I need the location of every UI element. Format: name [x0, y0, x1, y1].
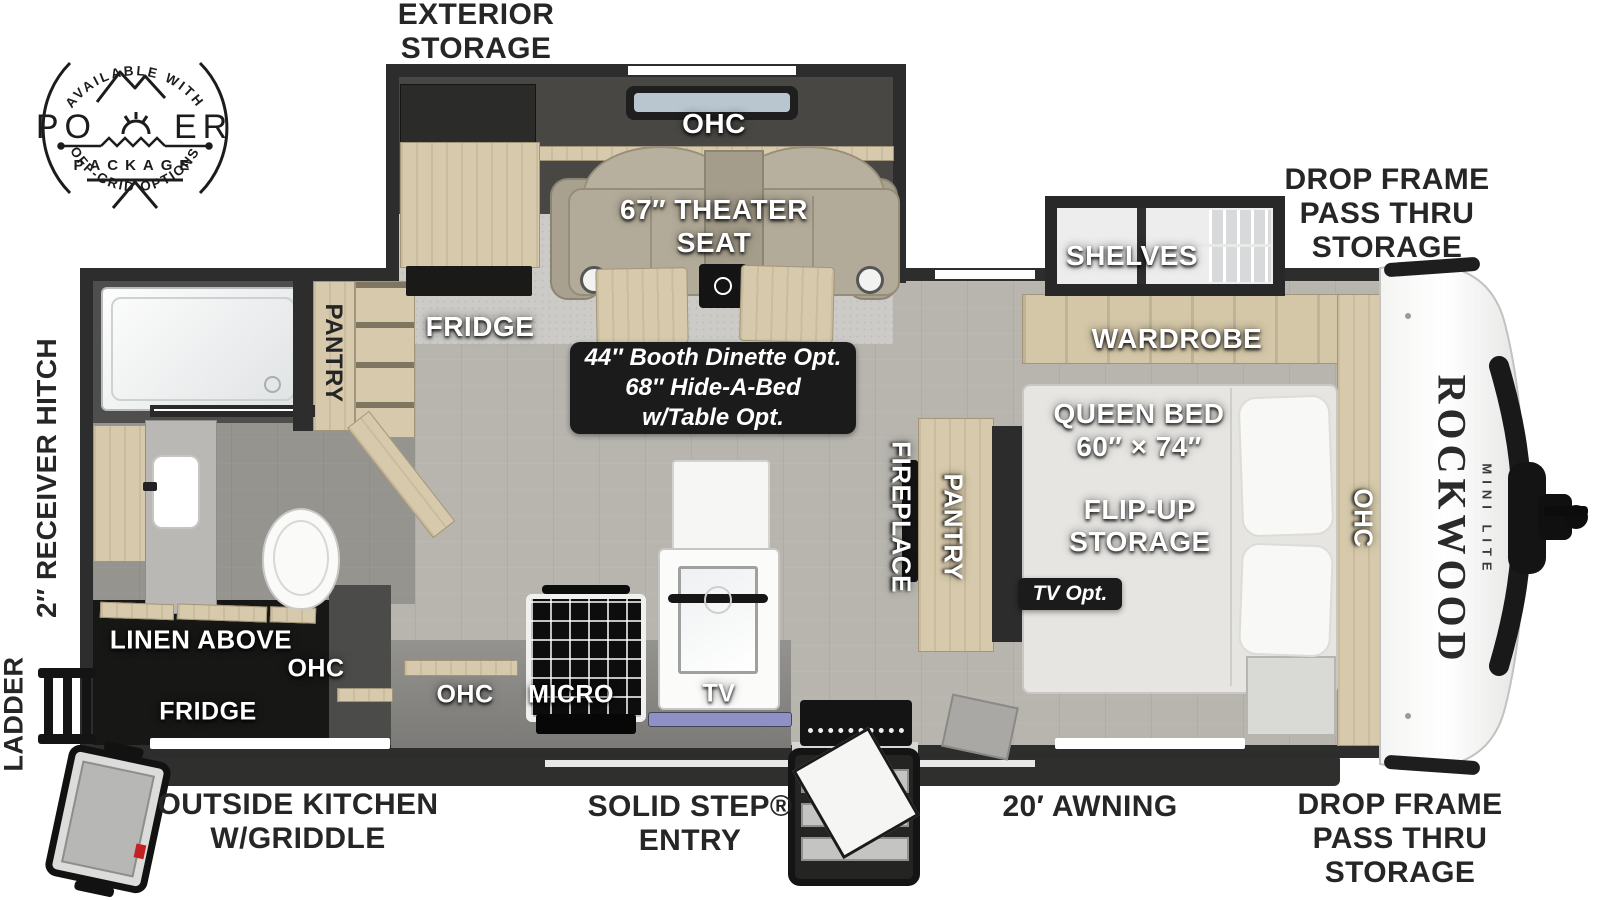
bath-wall-stub — [293, 281, 313, 431]
awning-bar — [100, 754, 1340, 786]
dinette-option-badge: 44″ Booth Dinette Opt. 68″ Hide-A-Bed w/… — [570, 342, 856, 434]
shelves-label: SHELVES — [1066, 240, 1198, 272]
shower-pan — [101, 287, 305, 411]
tv-strip — [648, 712, 792, 727]
ladder-label: LADDER — [1, 657, 28, 772]
griddle-icon — [43, 743, 173, 896]
floorplan-canvas: AVAILABLE WITH OFF-GRID OPTIONS PO ER PA… — [0, 0, 1600, 900]
receiver-hitch-label: 2″ RECEIVER HITCH — [33, 338, 61, 618]
awning-label: 20′ AWNING — [1002, 790, 1177, 824]
range-handle — [542, 585, 630, 594]
fridge-slide-label: FRIDGE — [426, 311, 535, 343]
bottom-window-right — [1055, 738, 1245, 749]
entry-door-window — [678, 566, 758, 674]
bed-head-seam — [1230, 388, 1232, 686]
linen-shelf-1 — [100, 602, 175, 621]
flip-up-storage-label-line1: FLIP-UP — [1084, 494, 1196, 526]
cupholder-right — [856, 266, 884, 294]
pillow-top — [1238, 394, 1335, 537]
micro-label: MICRO — [528, 681, 614, 710]
tv-option-badge: TV Opt. — [1018, 578, 1122, 610]
bath-sink — [152, 455, 200, 529]
pantry-bath-label: PANTRY — [319, 304, 347, 403]
logo-word-left: PO — [36, 108, 97, 146]
ohc-bath-label: OHC — [287, 655, 344, 684]
brand-wordmark: ROCKWOOD — [1429, 374, 1476, 665]
cap-screw-top — [1405, 313, 1411, 319]
tv-label: TV — [703, 680, 736, 709]
dinette-table-right — [739, 265, 835, 343]
vanity-cabinet — [93, 425, 147, 562]
toilet — [262, 508, 340, 610]
pillow-bottom — [1238, 542, 1334, 657]
pantry-main-label: PANTRY — [938, 474, 969, 581]
exterior-storage-label: EXTERIOR STORAGE — [398, 0, 555, 66]
nightstand — [1246, 656, 1336, 736]
queen-bed-label-line1: QUEEN BED — [1054, 398, 1225, 430]
entry-door-screen — [672, 460, 770, 554]
linen-above-label: LINEN ABOVE — [110, 625, 292, 656]
kitchen-ohc-shelf — [404, 660, 518, 676]
fridge-appliance — [406, 266, 532, 296]
shower-drain-icon — [264, 376, 281, 393]
ohc-kitchen-label: OHC — [436, 681, 493, 710]
logo-sub: PACKAGE — [74, 157, 197, 174]
ohc-bed-label: OHC — [1348, 488, 1379, 547]
theater-seat-label-line2: SEAT — [677, 227, 752, 259]
hitch-icon — [1544, 506, 1588, 516]
logo-word-right: ER — [174, 108, 233, 146]
brand-model: MINI LITE — [1480, 463, 1495, 576]
fireplace-label: FIREPLACE — [886, 441, 917, 593]
toilet-seat — [273, 520, 329, 596]
flip-up-storage-label-line2: STORAGE — [1069, 526, 1210, 558]
range-front-panel — [536, 714, 636, 734]
theater-seat-label-line1: 67″ THEATER — [620, 194, 808, 226]
console-dial-icon — [714, 277, 732, 295]
cap-screw-bottom — [1405, 713, 1411, 719]
drop-frame-bottom-label: DROP FRAME PASS THRU STORAGE — [1297, 788, 1502, 891]
pantry-back-wall — [992, 426, 1022, 642]
linen-shelf-2 — [177, 603, 268, 622]
wardrobe-label: WARDROBE — [1092, 323, 1262, 355]
shower-glass-line — [154, 409, 304, 411]
faucet-icon — [143, 482, 157, 491]
entry-mat-dots — [808, 728, 904, 733]
bottom-window-left — [150, 738, 390, 749]
solid-step-entry-label: SOLID STEP® ENTRY — [588, 790, 793, 858]
drop-frame-top-label: DROP FRAME PASS THRU STORAGE — [1284, 163, 1489, 266]
griddle-knob — [134, 843, 147, 859]
entry-door-lock — [704, 586, 732, 614]
propane-tank-icon — [1508, 462, 1588, 574]
kitchen-ohc-shelf-left — [337, 688, 393, 702]
top-wall-window — [935, 270, 1035, 279]
ohc-slide-label: OHC — [682, 108, 746, 140]
dinette-table-left — [595, 267, 688, 345]
slide-counter — [400, 84, 536, 144]
power-package-logo: AVAILABLE WITH OFF-GRID OPTIONS PO ER PA… — [35, 28, 235, 228]
queen-bed-label-line2: 60″ × 74″ — [1076, 431, 1202, 463]
shower-door — [150, 405, 315, 417]
fridge-cabinet — [400, 142, 540, 268]
outside-kitchen-label: OUTSIDE KITCHEN W/GRIDDLE — [157, 788, 438, 856]
sun-icon — [123, 112, 149, 134]
slide-top-window-slot — [628, 66, 796, 75]
fridge-bath-label: FRIDGE — [159, 698, 256, 727]
